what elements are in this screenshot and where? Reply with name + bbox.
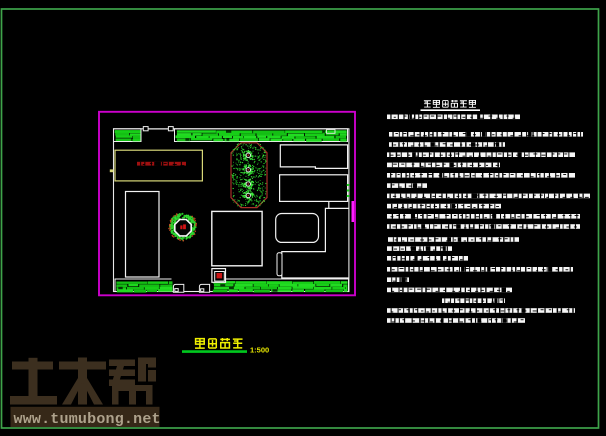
svg-text:1:500: 1:500	[250, 346, 269, 355]
svg-text:www.tumubong.net: www.tumubong.net	[14, 411, 161, 428]
